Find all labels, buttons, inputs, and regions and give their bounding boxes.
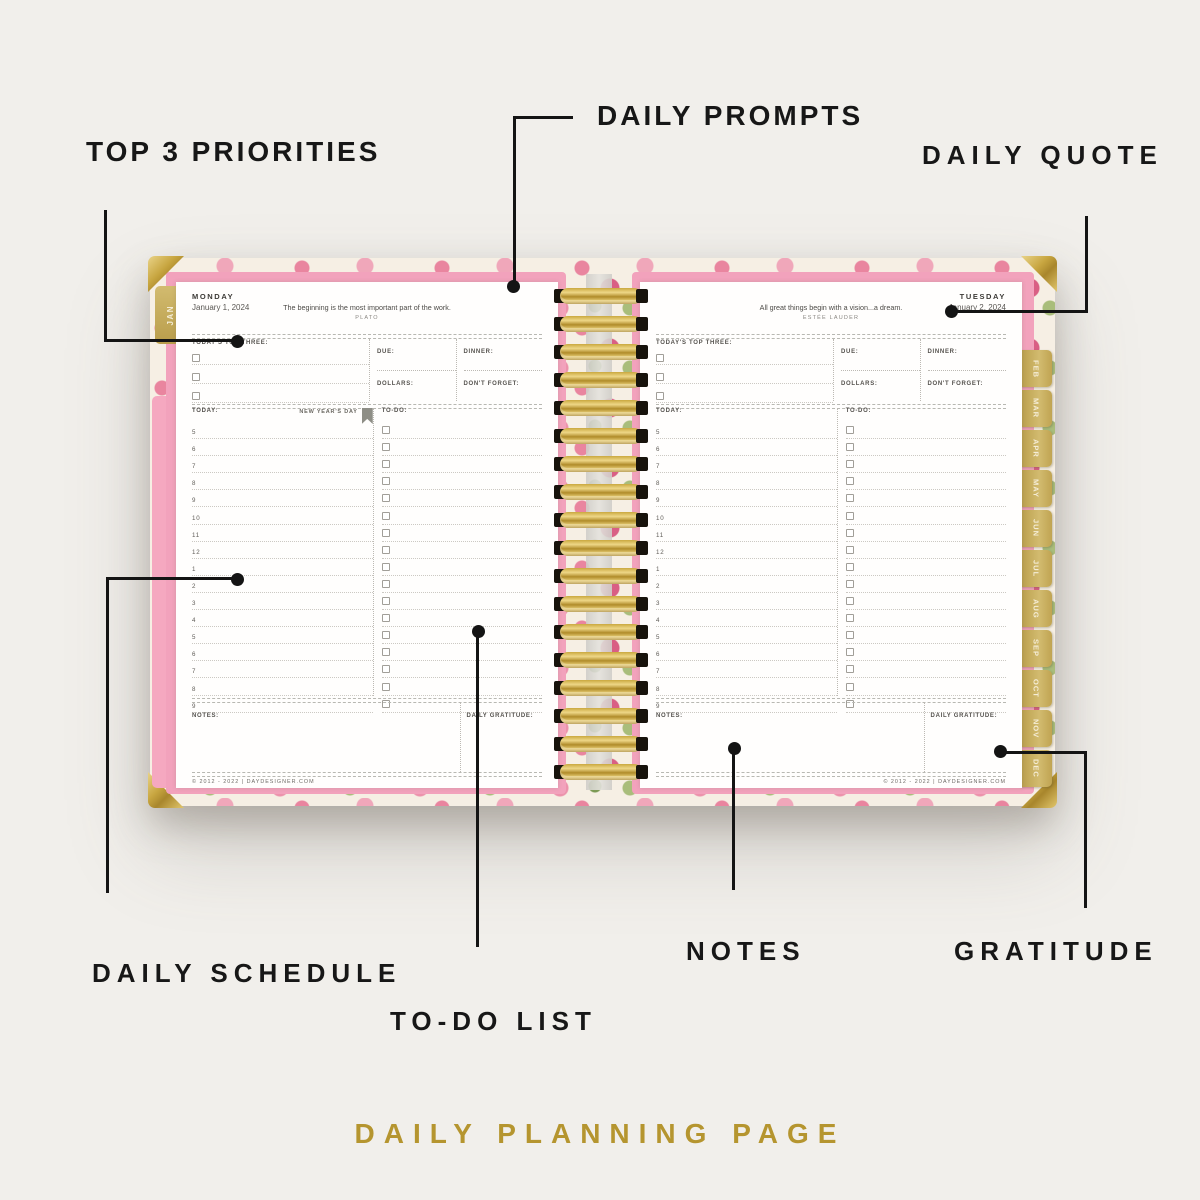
todo-row xyxy=(382,473,542,490)
schedule-row: 5 xyxy=(656,627,837,644)
callout-daily-quote: DAILY QUOTE xyxy=(922,140,1163,171)
todo-row xyxy=(846,422,1006,439)
planner-page-left: MONDAY January 1, 2024 The beginning is … xyxy=(176,282,558,788)
checkbox-icon xyxy=(846,631,854,639)
callout-line xyxy=(1000,751,1087,754)
schedule-row: 1 xyxy=(656,559,837,576)
schedule-rows: 56789101112123456789 xyxy=(192,422,373,713)
schedule-row: 6 xyxy=(656,644,837,661)
spiral-coil-icon xyxy=(554,428,648,444)
time-label: 7 xyxy=(656,668,660,675)
checkbox-icon xyxy=(846,477,854,485)
schedule-row: 4 xyxy=(192,610,373,627)
quote-author: ESTÉE LAUDER xyxy=(680,315,982,321)
time-label: 5 xyxy=(192,429,196,436)
checkbox-icon xyxy=(846,597,854,605)
checkbox-icon xyxy=(382,580,390,588)
checkbox-icon xyxy=(846,443,854,451)
month-tab-label: NOV xyxy=(1032,719,1041,738)
dinner-dontforget-section: DINNER: DON'T FORGET: xyxy=(920,339,1006,401)
todo-row xyxy=(382,525,542,542)
notes-gratitude-row: NOTES: DAILY GRATITUDE: xyxy=(656,702,1006,772)
planner-page-right: TUESDAY January 2, 2024 All great things… xyxy=(640,282,1022,788)
month-tab-label: DEC xyxy=(1032,759,1041,778)
spiral-coil-icon xyxy=(554,652,648,668)
todo-rows xyxy=(382,422,542,713)
time-label: 4 xyxy=(656,617,660,624)
checkbox-icon xyxy=(382,460,390,468)
top-three-row xyxy=(192,384,369,403)
checkbox-icon xyxy=(846,494,854,502)
spiral-coil-icon xyxy=(554,624,648,640)
callout-line xyxy=(951,310,1088,313)
spiral-coil-icon xyxy=(554,512,648,528)
todo-row xyxy=(382,542,542,559)
checkbox-icon xyxy=(382,614,390,622)
month-tab-apr: APR xyxy=(1020,430,1052,467)
todo-row xyxy=(846,456,1006,473)
todo-row xyxy=(382,422,542,439)
todo-row xyxy=(382,644,542,661)
month-tab-label: AUG xyxy=(1032,599,1041,619)
spiral-coil-icon xyxy=(554,568,648,584)
top-three-rows xyxy=(656,346,833,403)
top-three-row xyxy=(656,346,833,365)
top-three-row xyxy=(192,365,369,384)
top-three-rows xyxy=(192,346,369,403)
copyright-text: © 2012 - 2022 | DAYDESIGNER.COM xyxy=(192,779,315,785)
todo-row xyxy=(846,507,1006,524)
caption-daily-planning-page: DAILY PLANNING PAGE xyxy=(0,1118,1200,1150)
month-tabs: FEBMARAPRMAYJUNJULAUGSEPOCTNOVDEC xyxy=(1020,350,1054,790)
time-label: 9 xyxy=(656,497,660,504)
holiday-label: NEW YEAR'S DAY xyxy=(299,409,357,415)
month-tab-mar: MAR xyxy=(1020,390,1052,427)
checkbox-icon xyxy=(382,529,390,537)
time-label: 10 xyxy=(656,515,664,522)
product-annotation-image: TOP 3 PRIORITIES DAILY PROMPTS DAILY QUO… xyxy=(0,0,1200,1200)
schedule-row: 10 xyxy=(656,507,837,524)
top-three-section: TODAY'S TOP THREE: xyxy=(192,339,369,401)
callout-line xyxy=(476,631,479,947)
callout-daily-schedule: DAILY SCHEDULE xyxy=(92,958,401,989)
month-tab-jun: JUN xyxy=(1020,510,1052,547)
callout-line xyxy=(106,577,237,580)
callout-gratitude: GRATITUDE xyxy=(954,936,1158,967)
todo-section: TO-DO: xyxy=(837,408,1006,696)
time-label: 7 xyxy=(656,463,660,470)
todo-row xyxy=(382,456,542,473)
checkbox-icon xyxy=(846,512,854,520)
checkbox-icon xyxy=(846,683,854,691)
checkbox-icon xyxy=(382,648,390,656)
checkbox-icon xyxy=(382,494,390,502)
callout-line xyxy=(513,116,573,119)
schedule-row: 3 xyxy=(192,593,373,610)
schedule-row: 4 xyxy=(656,610,837,627)
todo-section: TO-DO: xyxy=(373,408,542,696)
top-three-row xyxy=(192,346,369,365)
todo-row xyxy=(382,661,542,678)
quote-author: PLATO xyxy=(216,315,518,321)
time-label: 2 xyxy=(656,583,660,590)
time-label: 4 xyxy=(192,617,196,624)
time-label: 10 xyxy=(192,515,200,522)
top-three-row xyxy=(656,365,833,384)
dinner-dontforget-section: DINNER: DON'T FORGET: xyxy=(456,339,542,401)
todo-label: TO-DO: xyxy=(846,408,871,414)
schedule-row: 8 xyxy=(192,473,373,490)
todo-label: TO-DO: xyxy=(382,408,407,414)
copyright-text: © 2012 - 2022 | DAYDESIGNER.COM xyxy=(883,779,1006,785)
checkbox-icon xyxy=(846,648,854,656)
quote-text: The beginning is the most important part… xyxy=(216,303,518,312)
time-label: 11 xyxy=(192,532,200,539)
checkbox-icon xyxy=(192,354,200,362)
schedule-row: 10 xyxy=(192,507,373,524)
today-label: TODAY: xyxy=(656,408,682,414)
month-tab-label: JUL xyxy=(1032,560,1041,577)
due-dollars-section: DUE: DOLLARS: xyxy=(369,339,455,401)
callout-dot xyxy=(507,280,520,293)
spiral-coil-icon xyxy=(554,736,648,752)
todo-row xyxy=(846,559,1006,576)
checkbox-icon xyxy=(846,563,854,571)
checkbox-icon xyxy=(382,563,390,571)
callout-top-3-priorities: TOP 3 PRIORITIES xyxy=(86,136,380,168)
todo-row xyxy=(382,507,542,524)
callout-dot xyxy=(231,335,244,348)
schedule-row: 2 xyxy=(656,576,837,593)
spiral-coil-icon xyxy=(554,400,648,416)
todo-row xyxy=(846,473,1006,490)
spiral-coil-icon xyxy=(554,680,648,696)
todo-row xyxy=(846,644,1006,661)
todo-row xyxy=(382,627,542,644)
time-label: 2 xyxy=(192,583,196,590)
time-label: 12 xyxy=(192,549,200,556)
time-label: 6 xyxy=(656,446,660,453)
time-label: 8 xyxy=(656,480,660,487)
todo-row xyxy=(382,439,542,456)
month-tab-jul: JUL xyxy=(1020,550,1052,587)
todo-row xyxy=(846,661,1006,678)
spiral-coil-icon xyxy=(554,344,648,360)
callout-notes: NOTES xyxy=(686,936,806,967)
schedule-rows: 56789101112123456789 xyxy=(656,422,837,713)
todo-row xyxy=(846,678,1006,695)
todo-row xyxy=(382,490,542,507)
checkbox-icon xyxy=(846,614,854,622)
checkbox-icon xyxy=(846,580,854,588)
schedule-row: 8 xyxy=(656,678,837,695)
callout-dot xyxy=(472,625,485,638)
checkbox-icon xyxy=(656,373,664,381)
callout-line xyxy=(1085,216,1088,313)
todo-row xyxy=(846,542,1006,559)
checkbox-icon xyxy=(382,426,390,434)
callout-line xyxy=(1084,751,1087,908)
due-dollars-section: DUE: DOLLARS: xyxy=(833,339,919,401)
todo-row xyxy=(846,576,1006,593)
month-tab-label: MAR xyxy=(1032,398,1041,418)
schedule-row: 5 xyxy=(192,422,373,439)
month-tab-label: SEP xyxy=(1032,639,1041,657)
dont-forget-label: DON'T FORGET: xyxy=(928,381,984,387)
schedule-row: 11 xyxy=(656,525,837,542)
schedule-row: 7 xyxy=(192,661,373,678)
checkbox-icon xyxy=(846,529,854,537)
checkbox-icon xyxy=(382,443,390,451)
due-label: DUE: xyxy=(841,349,858,355)
schedule-row: 11 xyxy=(192,525,373,542)
month-tab-nov: NOV xyxy=(1020,710,1052,747)
time-label: 8 xyxy=(192,480,196,487)
month-tab-may: MAY xyxy=(1020,470,1052,507)
notes-label: NOTES: xyxy=(656,713,683,719)
daily-prompts-row: TODAY'S TOP THREE: DUE: DOLLARS: DINNER:… xyxy=(192,339,542,401)
day-name: TUESDAY xyxy=(846,292,1006,301)
top-three-row xyxy=(656,384,833,403)
daily-prompts-row: TODAY'S TOP THREE: DUE: DOLLARS: DINNER:… xyxy=(656,339,1006,401)
time-label: 6 xyxy=(192,651,196,658)
time-label: 7 xyxy=(192,668,196,675)
todo-row xyxy=(846,490,1006,507)
schedule-row: 5 xyxy=(656,422,837,439)
callout-dot xyxy=(231,573,244,586)
time-label: 6 xyxy=(192,446,196,453)
checkbox-icon xyxy=(382,683,390,691)
todo-row xyxy=(846,439,1006,456)
schedule-row: 1 xyxy=(192,559,373,576)
schedule-row: 8 xyxy=(192,678,373,695)
time-label: 1 xyxy=(656,566,660,573)
callout-dot xyxy=(945,305,958,318)
time-label: 9 xyxy=(192,497,196,504)
schedule-row: 12 xyxy=(192,542,373,559)
month-tab-label: FEB xyxy=(1032,360,1041,378)
month-tab-aug: AUG xyxy=(1020,590,1052,627)
time-label: 1 xyxy=(192,566,196,573)
spiral-coil-icon xyxy=(554,316,648,332)
daily-schedule-section: TODAY: 56789101112123456789 xyxy=(656,408,837,696)
callout-line xyxy=(104,210,107,342)
checkbox-icon xyxy=(382,512,390,520)
time-label: 5 xyxy=(192,634,196,641)
todo-row xyxy=(382,576,542,593)
dollars-label: DOLLARS: xyxy=(841,381,878,387)
time-label: 8 xyxy=(656,686,660,693)
schedule-row: 9 xyxy=(656,490,837,507)
spiral-coil-icon xyxy=(554,372,648,388)
daily-quote-block: The beginning is the most important part… xyxy=(216,303,518,321)
time-label: 12 xyxy=(656,549,664,556)
checkbox-icon xyxy=(382,546,390,554)
todo-row xyxy=(846,627,1006,644)
schedule-row: 12 xyxy=(656,542,837,559)
callout-dot xyxy=(994,745,1007,758)
day-name: MONDAY xyxy=(192,292,352,301)
checkbox-icon xyxy=(382,477,390,485)
time-label: 3 xyxy=(192,600,196,607)
month-tab-label: APR xyxy=(1032,439,1041,458)
todo-row xyxy=(846,593,1006,610)
schedule-row: 7 xyxy=(656,456,837,473)
schedule-todo-row: TODAY: 56789101112123456789 TO-DO: xyxy=(656,408,1006,696)
dashed-divider xyxy=(656,772,1006,777)
schedule-todo-row: TODAY: NEW YEAR'S DAY 567891011121234567… xyxy=(192,408,542,696)
todo-row xyxy=(846,525,1006,542)
daily-schedule-section: TODAY: NEW YEAR'S DAY 567891011121234567… xyxy=(192,408,373,696)
checkbox-icon xyxy=(382,597,390,605)
todo-row xyxy=(846,610,1006,627)
todo-row xyxy=(382,559,542,576)
dinner-label: DINNER: xyxy=(464,349,494,355)
spiral-binding xyxy=(554,288,648,792)
time-label: 7 xyxy=(192,463,196,470)
gratitude-label: DAILY GRATITUDE: xyxy=(931,713,998,719)
today-label: TODAY: xyxy=(192,408,218,414)
time-label: 6 xyxy=(656,651,660,658)
schedule-row: 6 xyxy=(192,644,373,661)
time-label: 3 xyxy=(656,600,660,607)
todo-rows xyxy=(846,422,1006,713)
checkbox-icon xyxy=(846,546,854,554)
checkbox-icon xyxy=(846,460,854,468)
todo-row xyxy=(382,593,542,610)
callout-line xyxy=(732,748,735,890)
callout-line xyxy=(513,116,516,286)
month-tab-feb: FEB xyxy=(1020,350,1052,387)
checkbox-icon xyxy=(382,665,390,673)
planner-book: JAN FEBMARAPRMAYJUNJULAUGSEPOCTNOVDEC MO… xyxy=(150,258,1055,806)
dollars-label: DOLLARS: xyxy=(377,381,414,387)
month-tab-oct: OCT xyxy=(1020,670,1052,707)
time-label: 5 xyxy=(656,634,660,641)
callout-dot xyxy=(728,742,741,755)
month-tab-label: JUN xyxy=(1032,519,1041,537)
schedule-row: 8 xyxy=(656,473,837,490)
checkbox-icon xyxy=(656,354,664,362)
notes-label: NOTES: xyxy=(192,713,219,719)
schedule-row: 7 xyxy=(656,661,837,678)
time-label: 11 xyxy=(656,532,664,539)
dinner-label: DINNER: xyxy=(928,349,958,355)
due-label: DUE: xyxy=(377,349,394,355)
schedule-row: 5 xyxy=(192,627,373,644)
spiral-coil-icon xyxy=(554,708,648,724)
month-tab-label: OCT xyxy=(1032,679,1041,698)
month-tab-label: JAN xyxy=(166,305,175,326)
time-label: 8 xyxy=(192,686,196,693)
spiral-coil-icon xyxy=(554,540,648,556)
checkbox-icon xyxy=(656,392,664,400)
dashed-divider xyxy=(192,772,542,777)
time-label: 5 xyxy=(656,429,660,436)
checkbox-icon xyxy=(192,392,200,400)
top-three-section: TODAY'S TOP THREE: xyxy=(656,339,833,401)
spiral-coil-icon xyxy=(554,288,648,304)
schedule-row: 3 xyxy=(656,593,837,610)
checkbox-icon xyxy=(382,631,390,639)
dont-forget-label: DON'T FORGET: xyxy=(464,381,520,387)
schedule-row: 6 xyxy=(192,439,373,456)
todo-row xyxy=(382,678,542,695)
month-tab-sep: SEP xyxy=(1020,630,1052,667)
schedule-row: 9 xyxy=(192,490,373,507)
checkbox-icon xyxy=(846,426,854,434)
callout-line xyxy=(104,339,238,342)
todo-row xyxy=(382,610,542,627)
spiral-coil-icon xyxy=(554,596,648,612)
spiral-coil-icon xyxy=(554,456,648,472)
schedule-row: 7 xyxy=(192,456,373,473)
notes-gratitude-row: NOTES: DAILY GRATITUDE: xyxy=(192,702,542,772)
callout-daily-prompts: DAILY PROMPTS xyxy=(597,100,863,132)
spiral-coil-icon xyxy=(554,764,648,780)
month-tab-dec: DEC xyxy=(1020,750,1052,787)
callout-todo-list: TO-DO LIST xyxy=(390,1006,597,1037)
quote-text: All great things begin with a vision...a… xyxy=(680,303,982,312)
daily-quote-block: All great things begin with a vision...a… xyxy=(680,303,982,321)
checkbox-icon xyxy=(846,665,854,673)
spiral-coil-icon xyxy=(554,484,648,500)
month-tab-label: MAY xyxy=(1032,479,1041,498)
callout-line xyxy=(106,577,109,893)
checkbox-icon xyxy=(192,373,200,381)
schedule-row: 6 xyxy=(656,439,837,456)
